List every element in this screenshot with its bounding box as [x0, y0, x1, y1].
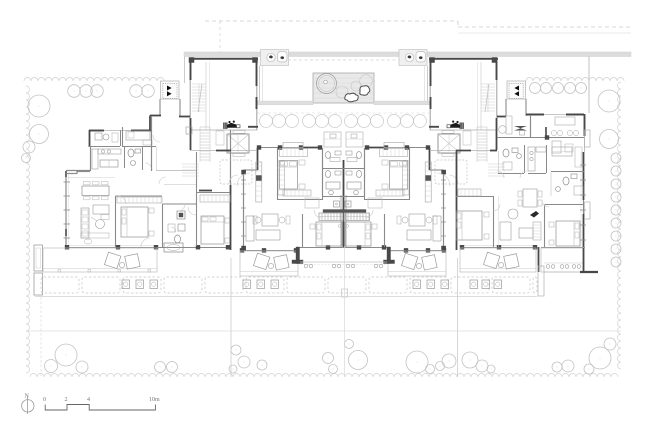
svg-text:10m: 10m	[149, 397, 160, 403]
svg-text:0: 0	[43, 397, 46, 403]
svg-text:N: N	[25, 394, 30, 400]
svg-text:2: 2	[65, 397, 68, 403]
svg-text:4: 4	[87, 397, 90, 403]
